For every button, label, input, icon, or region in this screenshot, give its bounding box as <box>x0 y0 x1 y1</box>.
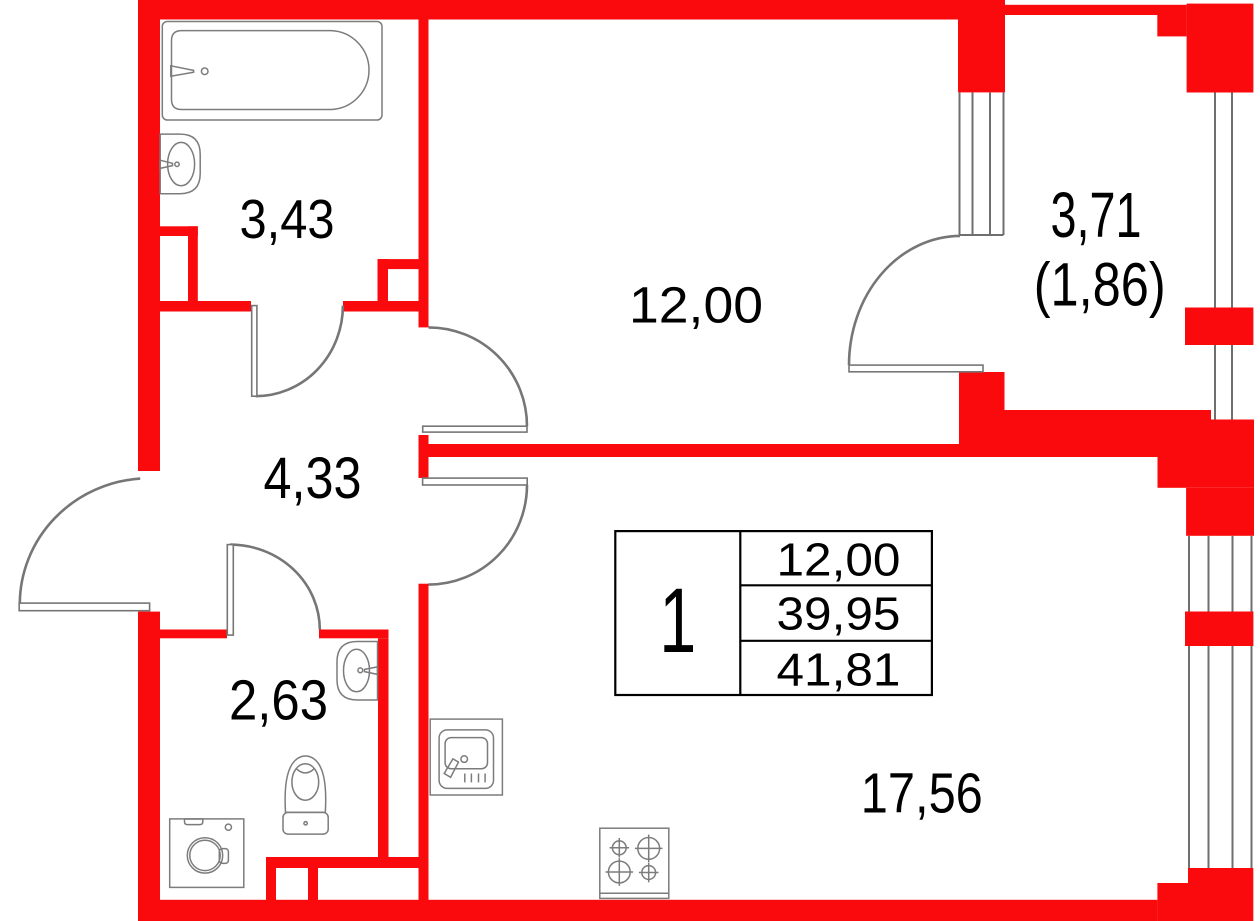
svg-text:3,43: 3,43 <box>240 188 335 250</box>
svg-text:2,63: 2,63 <box>229 669 328 733</box>
svg-text:12,00: 12,00 <box>629 276 763 333</box>
svg-text:4,33: 4,33 <box>264 446 362 511</box>
svg-text:41,81: 41,81 <box>777 643 901 695</box>
svg-text:39,95: 39,95 <box>777 588 901 640</box>
svg-text:1: 1 <box>659 570 696 672</box>
svg-text:3,71: 3,71 <box>1051 179 1142 251</box>
svg-text:(1,86): (1,86) <box>1034 251 1166 319</box>
svg-text:12,00: 12,00 <box>777 534 901 586</box>
svg-text:17,56: 17,56 <box>861 761 983 825</box>
